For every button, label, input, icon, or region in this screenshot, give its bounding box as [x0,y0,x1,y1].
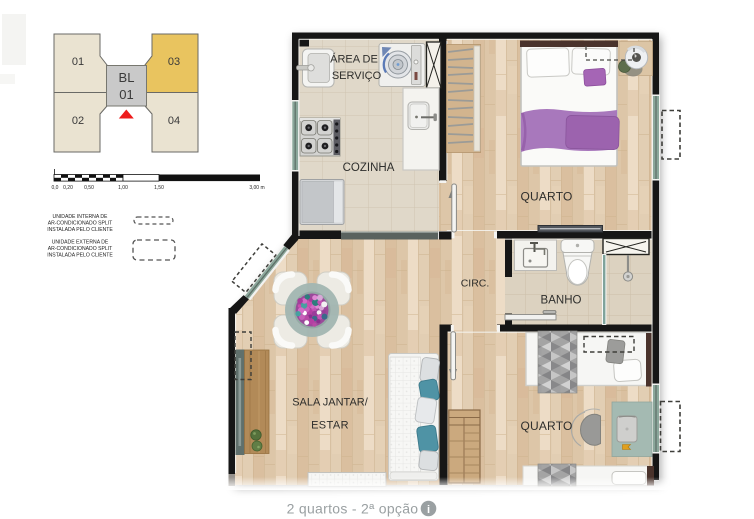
svg-text:SALA JANTAR/: SALA JANTAR/ [292,397,369,409]
svg-text:BL: BL [119,70,135,85]
svg-text:QUARTO: QUARTO [520,419,572,433]
svg-text:01: 01 [119,87,133,102]
svg-text:1,00: 1,00 [118,185,128,191]
svg-text:CIRC.: CIRC. [461,278,490,290]
svg-text:02: 02 [72,115,84,127]
svg-text:i: i [427,504,430,516]
svg-text:AR-CONDICIONADO SPLIT: AR-CONDICIONADO SPLIT [48,246,113,252]
svg-text:2 quartos - 2ª opção: 2 quartos - 2ª opção [287,501,419,517]
svg-text:INSTALADA PELO CLIENTE: INSTALADA PELO CLIENTE [47,227,113,233]
svg-text:ÁREA DE: ÁREA DE [330,53,378,66]
svg-text:BANHO: BANHO [541,295,582,307]
svg-text:03: 03 [168,56,180,68]
svg-text:01: 01 [72,56,84,68]
svg-text:1,50: 1,50 [154,185,164,191]
svg-text:COZINHA: COZINHA [343,162,395,174]
svg-text:3,00 m: 3,00 m [249,185,264,191]
svg-text:04: 04 [168,115,180,127]
svg-text:UNIDADE EXTERNA DE: UNIDADE EXTERNA DE [52,240,109,246]
svg-text:SERVIÇO: SERVIÇO [332,70,382,82]
svg-text:0,50: 0,50 [84,185,94,191]
svg-text:ESTAR: ESTAR [311,420,349,432]
svg-text:0,0: 0,0 [52,185,59,191]
svg-text:QUARTO: QUARTO [520,190,572,204]
svg-text:UNIDADE INTERNA DE: UNIDADE INTERNA DE [53,214,109,220]
svg-text:INSTALADA PELO CLIENTE: INSTALADA PELO CLIENTE [47,253,113,259]
svg-text:0,20: 0,20 [63,185,73,191]
svg-text:AR-CONDICIONADO SPLIT: AR-CONDICIONADO SPLIT [48,221,113,227]
